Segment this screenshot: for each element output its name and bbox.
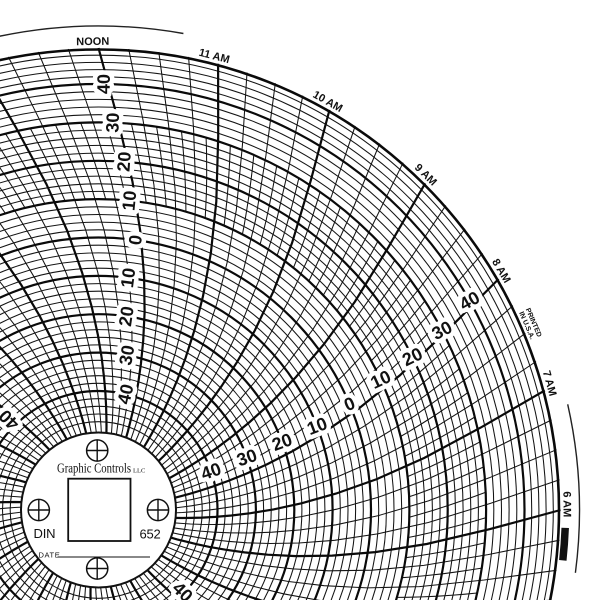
svg-text:10: 10 bbox=[118, 190, 140, 212]
svg-text:10: 10 bbox=[117, 267, 139, 289]
svg-text:20: 20 bbox=[115, 305, 138, 328]
svg-text:Graphic Controls: Graphic Controls bbox=[57, 461, 131, 476]
svg-text:30: 30 bbox=[115, 344, 138, 367]
svg-text:LLC: LLC bbox=[133, 468, 145, 475]
svg-text:40: 40 bbox=[94, 74, 114, 94]
svg-text:DIN: DIN bbox=[34, 526, 56, 541]
svg-text:DATE: DATE bbox=[39, 551, 61, 560]
svg-text:6 AM: 6 AM bbox=[560, 491, 572, 517]
svg-text:30: 30 bbox=[102, 112, 123, 133]
svg-text:NOON: NOON bbox=[76, 36, 109, 48]
svg-text:20: 20 bbox=[113, 151, 134, 172]
svg-text:652: 652 bbox=[140, 527, 161, 542]
